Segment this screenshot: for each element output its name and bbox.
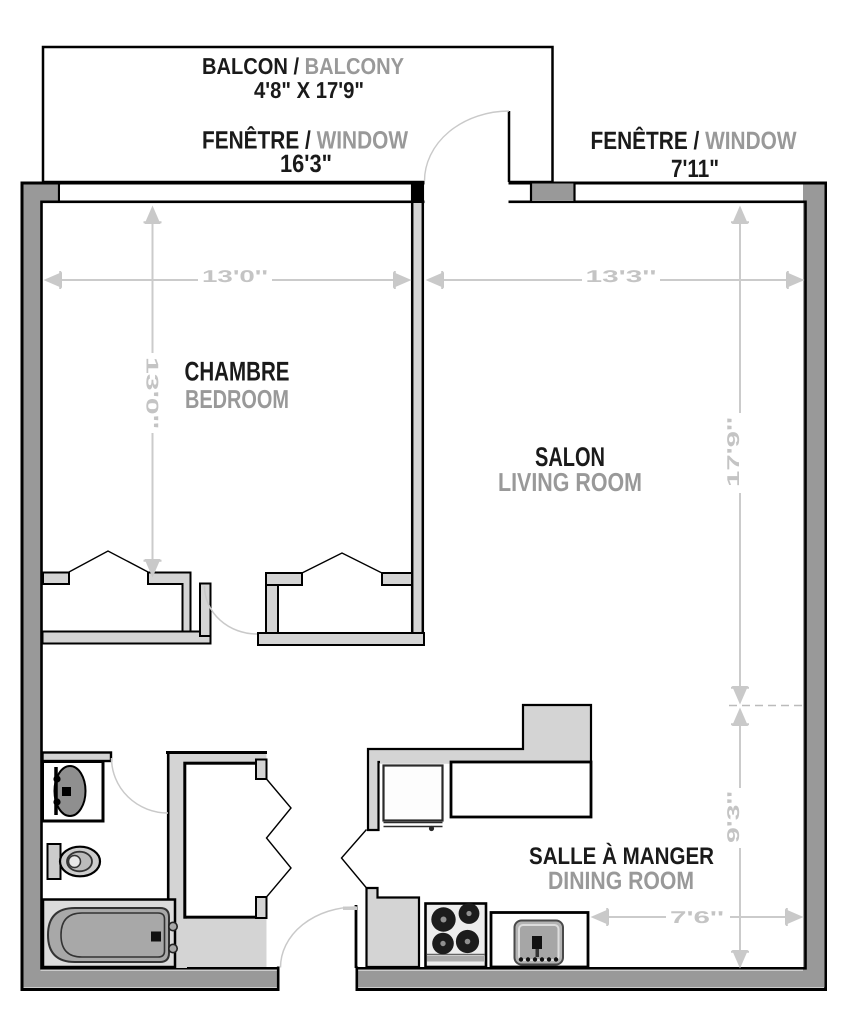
svg-text:BEDROOM: BEDROOM (185, 384, 289, 414)
svg-text:9'3'': 9'3'' (724, 791, 743, 843)
svg-text:4'8" X 17'9": 4'8" X 17'9" (254, 77, 364, 103)
svg-text:17'9'': 17'9'' (724, 417, 743, 487)
svg-text:13'3'': 13'3'' (586, 267, 657, 286)
svg-text:DINING ROOM: DINING ROOM (548, 867, 694, 895)
svg-text:SALLE À MANGER: SALLE À MANGER (529, 842, 714, 870)
svg-text:BALCON / BALCONY: BALCON / BALCONY (202, 53, 404, 79)
svg-text:LIVING ROOM: LIVING ROOM (498, 467, 642, 497)
svg-text:7'6'': 7'6'' (670, 908, 724, 927)
svg-text:CHAMBRE: CHAMBRE (185, 357, 290, 387)
svg-text:FENÊTRE / WINDOW: FENÊTRE / WINDOW (591, 126, 797, 155)
svg-text:13'0'': 13'0'' (202, 267, 268, 286)
svg-text:7'11": 7'11" (671, 155, 719, 183)
svg-text:16'3": 16'3" (280, 150, 332, 178)
svg-text:13'0'': 13'0'' (143, 357, 162, 429)
